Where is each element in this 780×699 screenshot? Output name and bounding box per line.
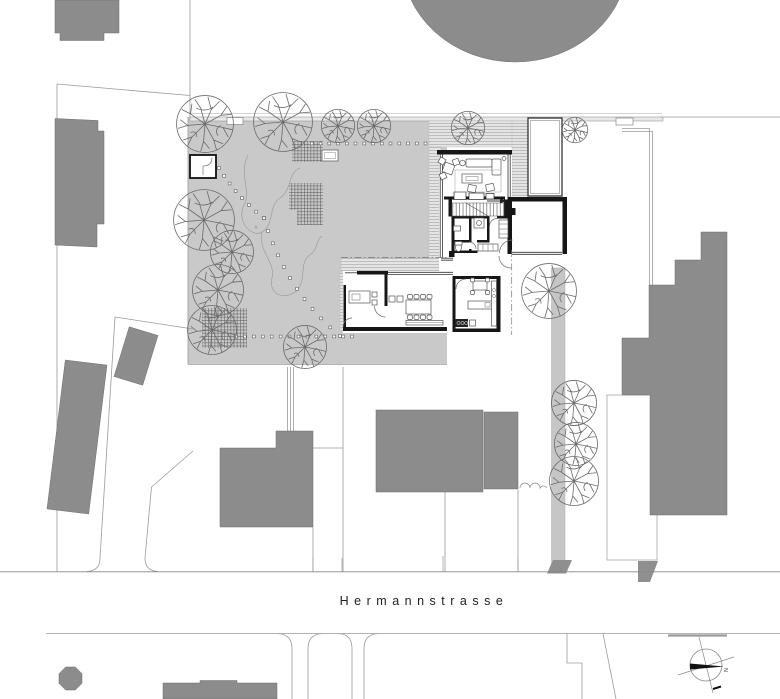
building-northwest xyxy=(55,0,119,41)
north-arrow: N xyxy=(678,637,734,693)
garden-gate-west xyxy=(227,118,243,125)
annex-outline xyxy=(607,395,657,560)
site-plan-canvas: Hermannstrasse N xyxy=(0,0,780,699)
garage xyxy=(510,197,567,255)
site-plan-page: Hermannstrasse N xyxy=(0,0,780,699)
building-southwest xyxy=(47,360,107,514)
octagon-structure xyxy=(59,667,82,690)
building-south-of-street xyxy=(163,681,277,699)
staircase xyxy=(452,203,504,216)
tree xyxy=(554,422,597,465)
curb-ticks xyxy=(313,556,518,572)
street: Hermannstrasse xyxy=(0,556,780,699)
building-west xyxy=(55,119,104,248)
building-small-west xyxy=(114,327,158,385)
pool xyxy=(528,118,562,196)
building-south-b-annex xyxy=(484,412,518,489)
building-south-a xyxy=(220,431,313,527)
building-south-b xyxy=(376,410,483,492)
oval-building xyxy=(402,0,628,62)
north-label: N xyxy=(722,668,728,672)
scale-tick xyxy=(713,687,721,690)
tree xyxy=(522,264,577,319)
driveway-flares xyxy=(277,634,616,699)
garden-gate-east xyxy=(616,118,633,125)
street-name-label: Hermannstrasse xyxy=(340,594,509,608)
tree xyxy=(550,457,599,506)
shrub-row xyxy=(520,483,547,488)
garden-shed xyxy=(190,155,216,178)
tree xyxy=(551,380,596,425)
